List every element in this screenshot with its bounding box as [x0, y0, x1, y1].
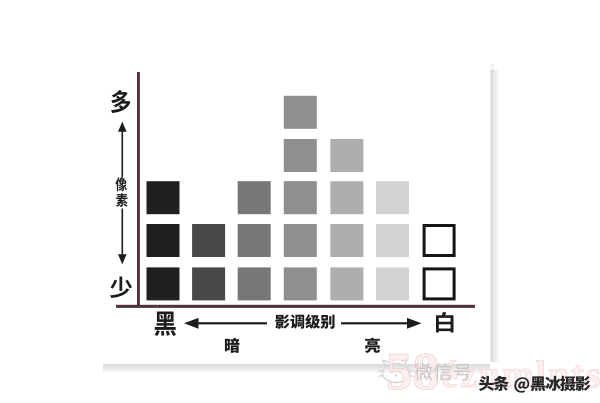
svg-text:58: 58 — [386, 343, 439, 401]
